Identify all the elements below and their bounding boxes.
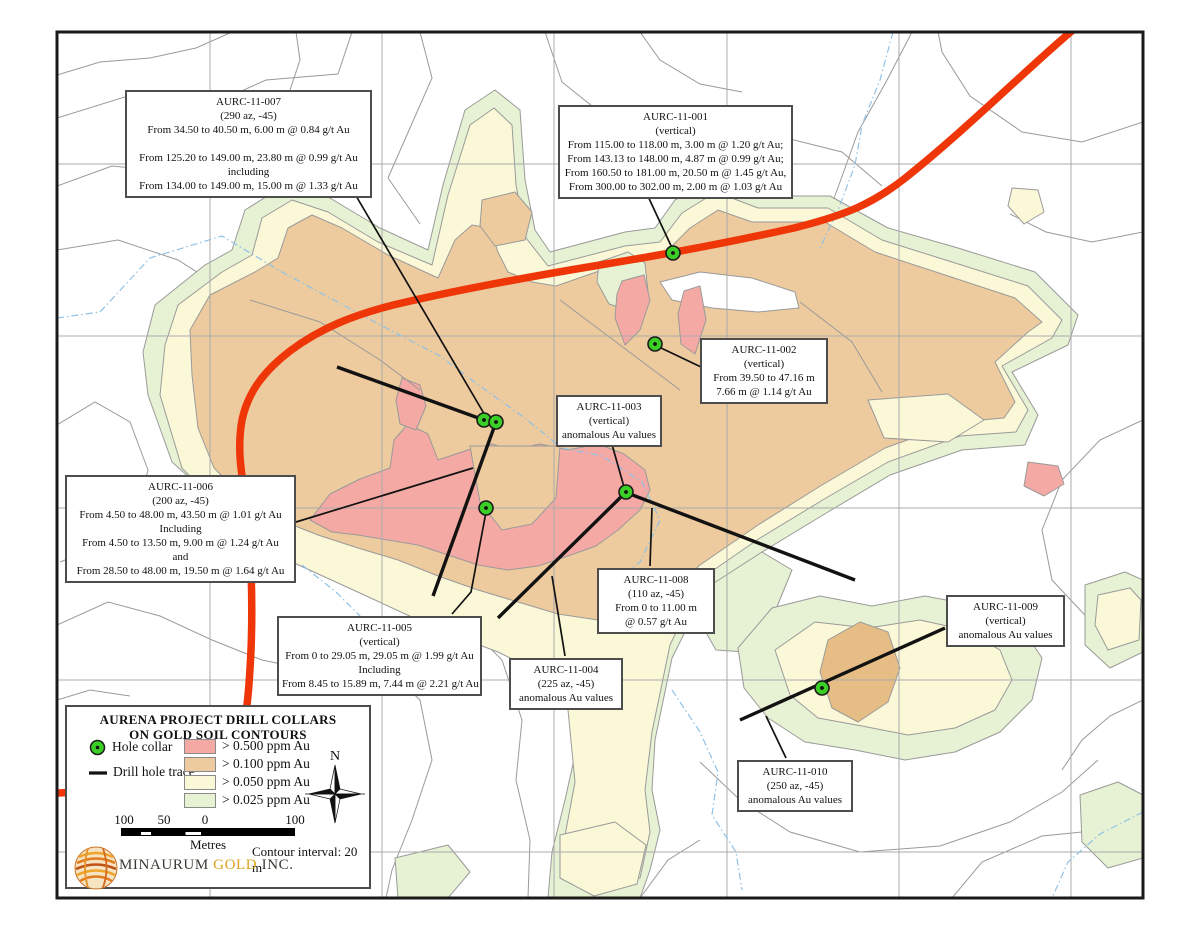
swatch-0500 xyxy=(184,739,216,754)
svg-text:N: N xyxy=(330,749,340,764)
legend-panel: AURENA PROJECT DRILL COLLARS ON GOLD SOI… xyxy=(65,705,371,889)
annotation-box-aurc-11-008: AURC-11-008(110 az, -45)From 0 to 11.00 … xyxy=(597,568,715,634)
hole-collar xyxy=(619,485,633,499)
hole-collar xyxy=(648,337,662,351)
hole-collar xyxy=(489,415,503,429)
annotation-box-aurc-11-010: AURC-11-010(250 az, -45)anomalous Au val… xyxy=(737,760,853,812)
annotation-box-aurc-11-007: AURC-11-007(290 az, -45)From 34.50 to 40… xyxy=(125,90,372,198)
annotation-box-aurc-11-002: AURC-11-002(vertical)From 39.50 to 47.16… xyxy=(700,338,828,404)
company-name: MINAURUM GOLD INC. xyxy=(119,857,294,874)
map-page: AURC-11-007(290 az, -45)From 34.50 to 40… xyxy=(0,0,1200,927)
scale-bar xyxy=(121,828,295,836)
annotation-box-aurc-11-001: AURC-11-001(vertical)From 115.00 to 118.… xyxy=(558,105,793,199)
annotation-box-aurc-11-003: AURC-11-003(vertical)anomalous Au values xyxy=(556,395,662,447)
legend-title: AURENA PROJECT DRILL COLLARS ON GOLD SOI… xyxy=(67,712,369,742)
annotation-box-aurc-11-004: AURC-11-004(225 az, -45)anomalous Au val… xyxy=(509,658,623,710)
compass-rose: N xyxy=(305,747,365,832)
annotation-box-aurc-11-005: AURC-11-005(vertical)From 0 to 29.05 m, … xyxy=(277,616,482,696)
legend-item-drill-trace: Drill hole trace xyxy=(89,764,195,780)
annotation-box-aurc-11-009: AURC-11-009(vertical)anomalous Au values xyxy=(946,595,1065,647)
hole-collar-icon xyxy=(89,739,106,756)
scale-unit: Metres xyxy=(190,837,226,853)
swatch-0025 xyxy=(184,793,216,808)
hole-collar xyxy=(666,246,680,260)
drill-trace-icon xyxy=(89,770,107,776)
swatch-0050 xyxy=(184,775,216,790)
hole-collar xyxy=(479,501,493,515)
annotation-box-aurc-11-006: AURC-11-006(200 az, -45)From 4.50 to 48.… xyxy=(65,475,296,583)
hole-collar xyxy=(815,681,829,695)
legend-item-hole-collar: Hole collar xyxy=(89,739,172,756)
swatch-0100 xyxy=(184,757,216,772)
company-logo-icon xyxy=(73,845,119,896)
